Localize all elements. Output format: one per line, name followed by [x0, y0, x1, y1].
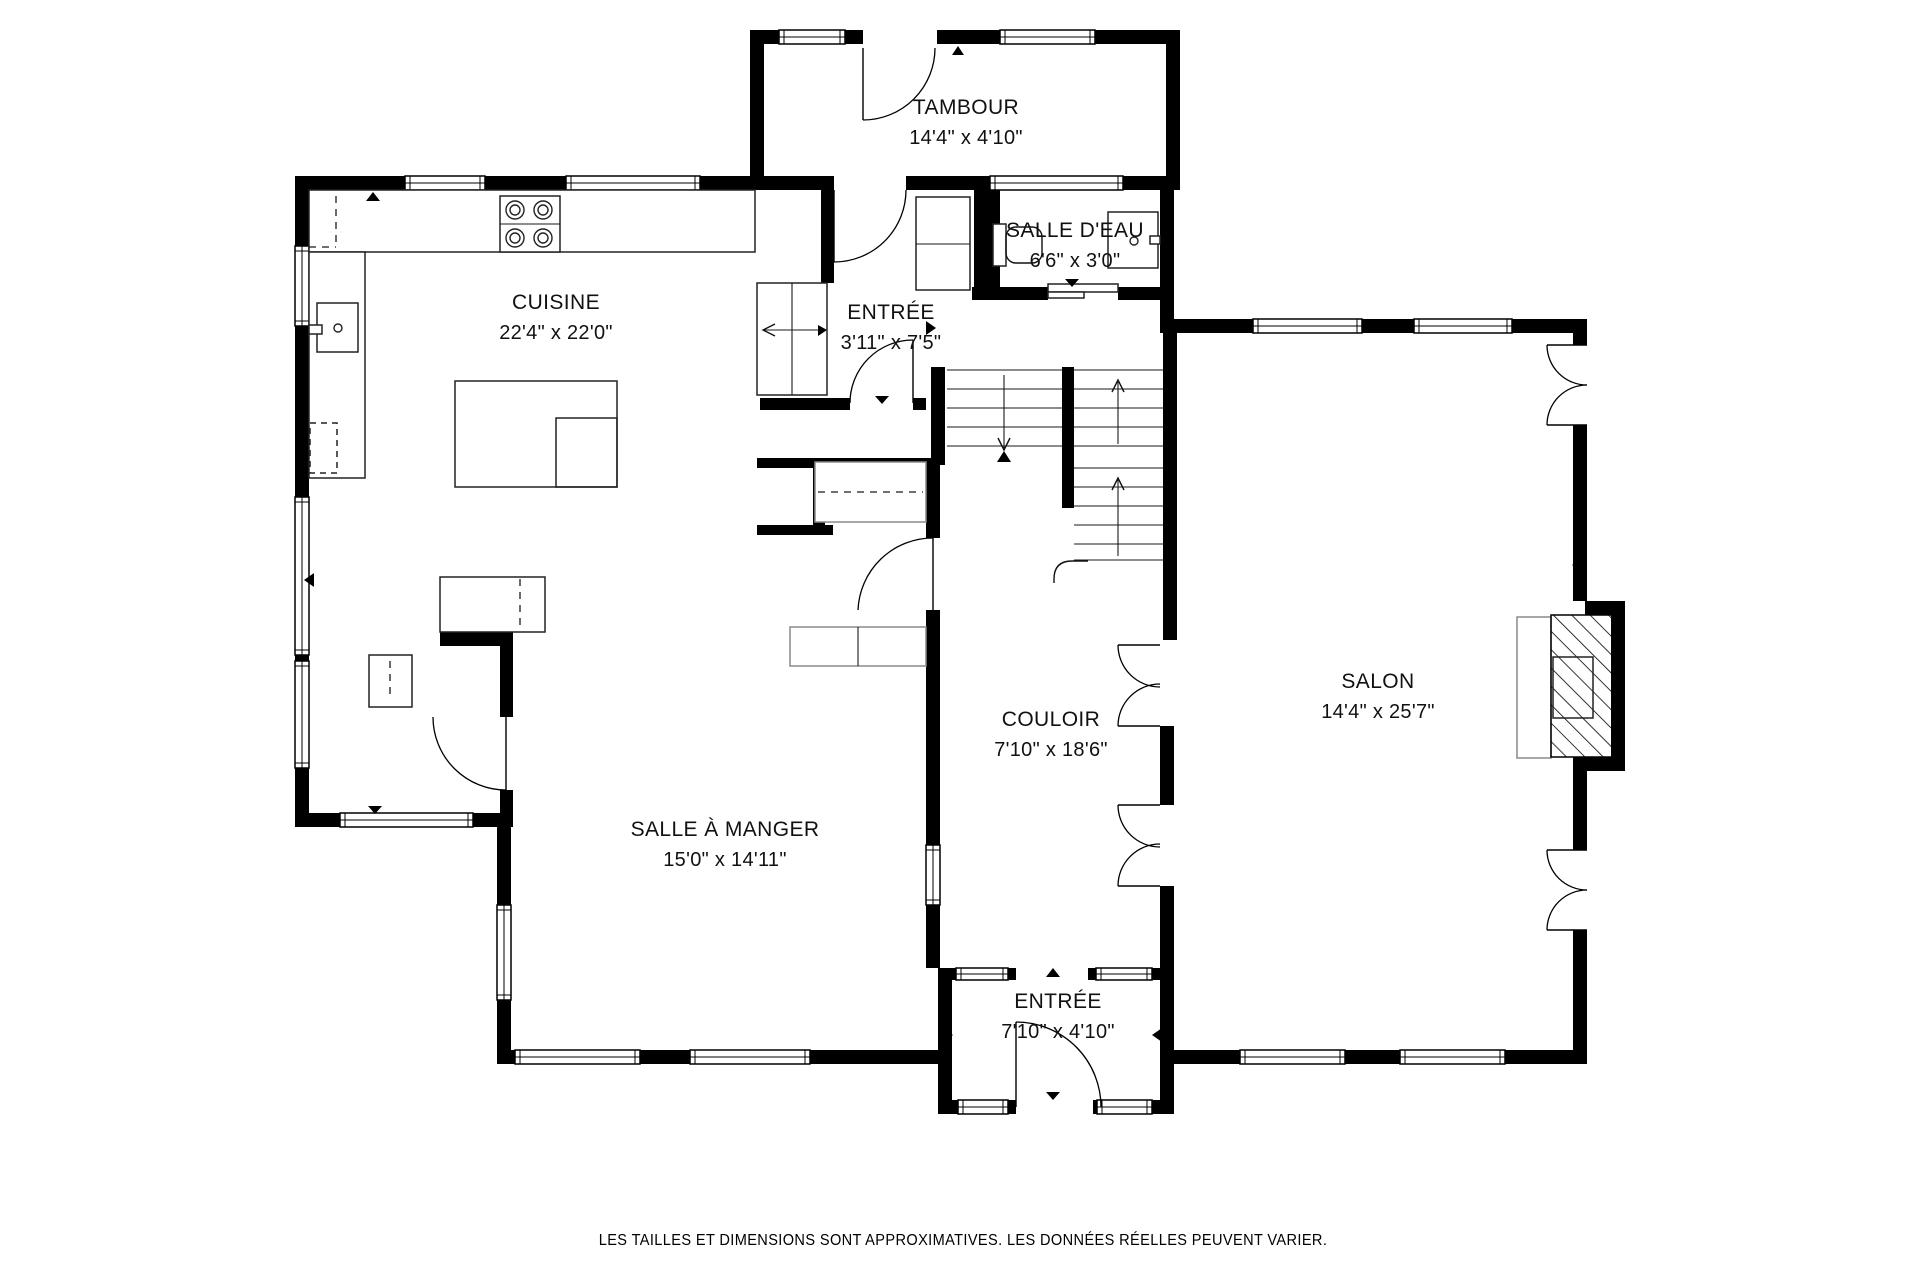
- door-swing-arc: [1547, 850, 1587, 890]
- marker-arrow: [875, 396, 889, 404]
- wall-segment: [1573, 930, 1587, 1064]
- wall-segment: [750, 30, 779, 44]
- cabinet-counter: [440, 577, 545, 632]
- wall-segment: [1160, 886, 1174, 968]
- wall-segment: [640, 1050, 690, 1064]
- stair-handrail: [1054, 561, 1088, 583]
- wall-segment: [1095, 30, 1180, 44]
- wall-segment: [1152, 968, 1174, 980]
- floorplan-drawing: [0, 0, 1920, 1280]
- wall-segment: [938, 968, 952, 1114]
- wall-segment: [938, 1100, 958, 1114]
- wall-segment: [1008, 968, 1016, 980]
- wall-segment: [1585, 757, 1625, 771]
- room-name: TAMBOUR: [909, 96, 1023, 120]
- door-swing-arc: [433, 717, 506, 790]
- wall-segment: [1174, 1050, 1240, 1064]
- room-label-tambour: TAMBOUR 14'4" x 4'10": [909, 96, 1023, 150]
- door-swing-arc: [1547, 890, 1587, 930]
- door-swing-arc: [858, 538, 933, 610]
- wall-segment: [500, 646, 513, 717]
- floorplan-canvas: TAMBOUR 14'4" x 4'10" SALLE D'EAU 6'6" x…: [0, 0, 1920, 1280]
- wall-segment: [497, 827, 511, 905]
- wall-segment: [485, 176, 566, 190]
- room-dims: 6'6" x 3'0": [1006, 250, 1144, 273]
- wall-segment: [1345, 1050, 1400, 1064]
- wall-segment: [1505, 1050, 1587, 1064]
- door-swing-arc: [1118, 805, 1160, 847]
- door-swing-arc: [1547, 385, 1587, 425]
- wall-segment: [937, 30, 1000, 44]
- room-dims: 15'0" x 14'11": [631, 849, 820, 872]
- room-dims: 7'10" x 18'6": [994, 739, 1108, 762]
- room-label-couloir: COULOIR 7'10" x 18'6": [994, 708, 1108, 762]
- wall-segment: [295, 176, 309, 246]
- wall-segment: [440, 632, 513, 646]
- pocket-door-track: [1048, 292, 1084, 298]
- wall-segment: [972, 287, 1048, 300]
- room-dims: 3'11" x 7'5": [841, 332, 942, 355]
- room-label-entree-haut: ENTRÉE 3'11" x 7'5": [841, 301, 942, 355]
- room-name: CUISINE: [499, 291, 613, 315]
- wall-segment: [760, 398, 850, 410]
- wall-segment: [1062, 367, 1074, 508]
- wall-segment: [750, 30, 764, 190]
- wall-segment: [913, 398, 926, 410]
- wall-segment: [1008, 1100, 1016, 1114]
- wall-segment: [1573, 425, 1587, 601]
- door-swing-arc: [1547, 345, 1587, 385]
- wall-segment: [1088, 968, 1096, 980]
- sink-faucet: [309, 325, 322, 334]
- wall-segment: [926, 610, 940, 845]
- wall-segment: [926, 460, 940, 538]
- wall-segment: [1611, 601, 1625, 771]
- room-name: SALLE À MANGER: [631, 818, 820, 842]
- hearth: [1517, 617, 1551, 758]
- wall-segment: [1362, 319, 1414, 333]
- marker-arrow: [1046, 968, 1060, 977]
- pocket-door: [1048, 284, 1118, 292]
- wall-segment: [1163, 333, 1177, 640]
- wall-segment: [500, 790, 513, 827]
- wall-segment: [926, 905, 940, 968]
- wall-segment: [1118, 287, 1174, 300]
- room-name: COULOIR: [994, 708, 1108, 732]
- room-name: SALON: [1321, 670, 1435, 694]
- wall-segment: [906, 176, 990, 190]
- room-label-salle-deau: SALLE D'EAU 6'6" x 3'0": [1006, 219, 1144, 273]
- wall-segment: [295, 813, 340, 827]
- room-dims: 22'4" x 22'0": [499, 322, 613, 345]
- wall-segment: [757, 525, 833, 535]
- marker-arrow: [952, 46, 964, 55]
- toilet-tank: [993, 224, 1006, 266]
- wall-segment: [1160, 190, 1174, 333]
- room-name: SALLE D'EAU: [1006, 219, 1144, 243]
- wall-segment: [295, 176, 405, 190]
- kitchen-sink: [317, 303, 358, 352]
- kitchen-island: [455, 381, 617, 487]
- door-swing-arc: [1118, 684, 1160, 726]
- wall-segment: [1573, 319, 1587, 345]
- door-swing-arc: [1118, 645, 1160, 687]
- door-swing-arc: [834, 190, 906, 262]
- wall-segment: [845, 30, 863, 44]
- marker-arrow: [997, 451, 1011, 462]
- marker-arrow: [1046, 1092, 1060, 1100]
- wall-segment: [1573, 757, 1587, 850]
- wall-segment: [1152, 1100, 1174, 1114]
- wall-segment: [700, 176, 834, 190]
- wall-segment: [1123, 176, 1180, 190]
- room-label-salle-a-manger: SALLE À MANGER 15'0" x 14'11": [631, 818, 820, 872]
- disclaimer-text: LES TAILLES ET DIMENSIONS SONT APPROXIMA…: [599, 1232, 1328, 1250]
- powder-faucet: [1150, 236, 1160, 244]
- wall-segment: [810, 1050, 952, 1064]
- wall-segment: [497, 1050, 515, 1064]
- wall-segment: [295, 655, 309, 661]
- room-label-entree-bas: ENTRÉE 7'10" x 4'10": [1001, 990, 1115, 1044]
- fireplace: [1551, 615, 1612, 757]
- room-dims: 7'10" x 4'10": [1001, 1021, 1115, 1044]
- wall-segment: [1166, 30, 1180, 190]
- room-dims: 14'4" x 25'7": [1321, 701, 1435, 724]
- room-name: ENTRÉE: [1001, 990, 1115, 1014]
- wall-segment: [295, 326, 309, 497]
- wall-segment: [931, 367, 945, 465]
- room-label-cuisine: CUISINE 22'4" x 22'0": [499, 291, 613, 345]
- room-name: ENTRÉE: [841, 301, 942, 325]
- wall-segment: [1160, 726, 1174, 805]
- room-label-salon: SALON 14'4" x 25'7": [1321, 670, 1435, 724]
- marker-arrow: [1152, 1028, 1162, 1042]
- wall-segment: [938, 968, 957, 980]
- wall-segment: [821, 190, 834, 283]
- door-swing-arc: [1118, 844, 1160, 886]
- wall-segment: [1174, 319, 1253, 333]
- wall-segment: [1160, 968, 1174, 1114]
- room-dims: 14'4" x 4'10": [909, 127, 1023, 150]
